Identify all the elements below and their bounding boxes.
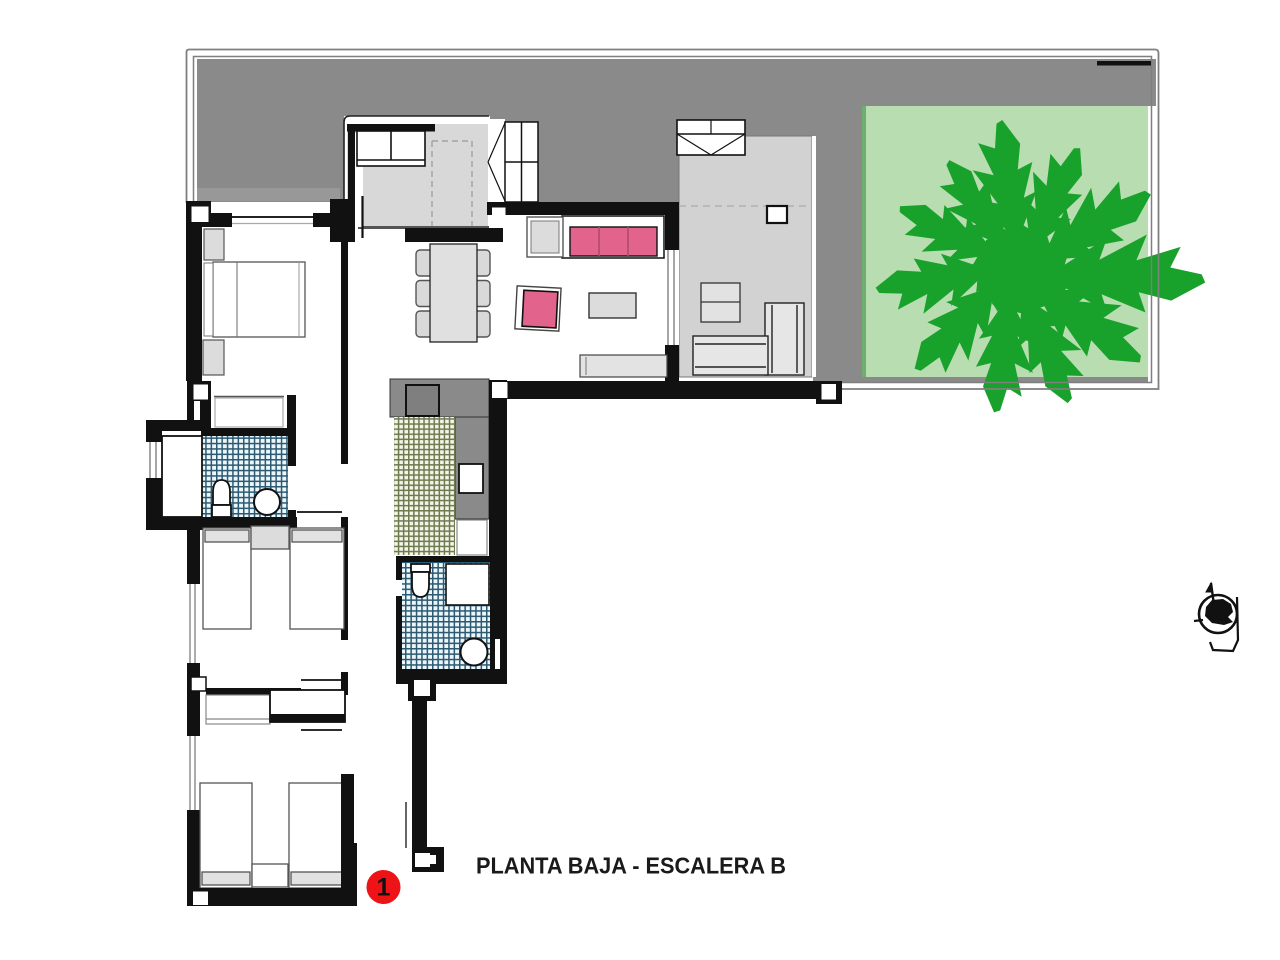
svg-text:PLANTA BAJA - ESCALERA B: PLANTA BAJA - ESCALERA B [476,853,786,879]
svg-text:1: 1 [377,874,391,902]
